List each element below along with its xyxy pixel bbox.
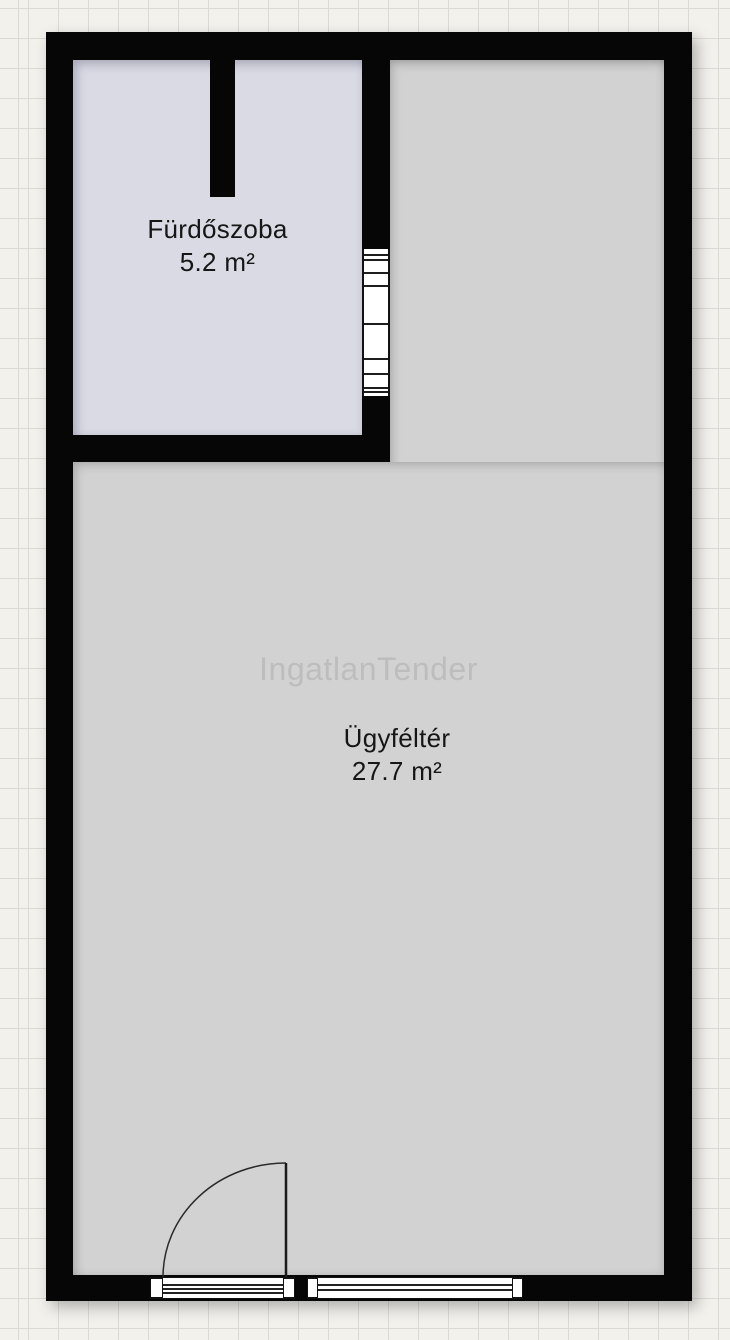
window-pane-line <box>364 259 388 261</box>
wall-outer-right <box>664 32 692 1301</box>
window-pane-line <box>364 254 388 256</box>
window-pane-line <box>318 1289 512 1291</box>
door-swing-icon <box>155 1148 295 1306</box>
wall-bathroom-stub <box>210 32 235 197</box>
window-pane-line <box>364 323 388 325</box>
window-frame-left <box>307 1278 318 1298</box>
main-room-area: 27.7 m² <box>130 755 664 788</box>
bottom-window-icon <box>307 1277 523 1299</box>
door-arc <box>163 1163 286 1277</box>
interior-window-icon <box>362 249 390 396</box>
watermark-text: IngatlanTender <box>73 651 664 688</box>
window-pane-line <box>318 1284 512 1286</box>
window-pane-line <box>364 358 388 360</box>
window-pane-line <box>364 387 388 389</box>
bathroom-area: 5.2 m² <box>73 246 362 279</box>
wall-outer-left <box>46 32 73 1301</box>
main-room-label: Ügyféltér 27.7 m² <box>130 722 664 788</box>
window-pane-line <box>364 373 388 375</box>
window-pane-line <box>364 285 388 287</box>
floor-plan-page: { "plan": { "watermark": "IngatlanTender… <box>0 0 730 1340</box>
window-pane-line <box>364 272 388 274</box>
bathroom-label: Fürdőszoba 5.2 m² <box>73 213 362 279</box>
wall-bathroom-divider <box>362 32 390 462</box>
bathroom-name: Fürdőszoba <box>73 213 362 246</box>
window-pane-line <box>364 391 388 393</box>
wall-bathroom-bottom <box>46 435 390 462</box>
window-frame-right <box>512 1278 523 1298</box>
main-room-name: Ügyféltér <box>130 722 664 755</box>
